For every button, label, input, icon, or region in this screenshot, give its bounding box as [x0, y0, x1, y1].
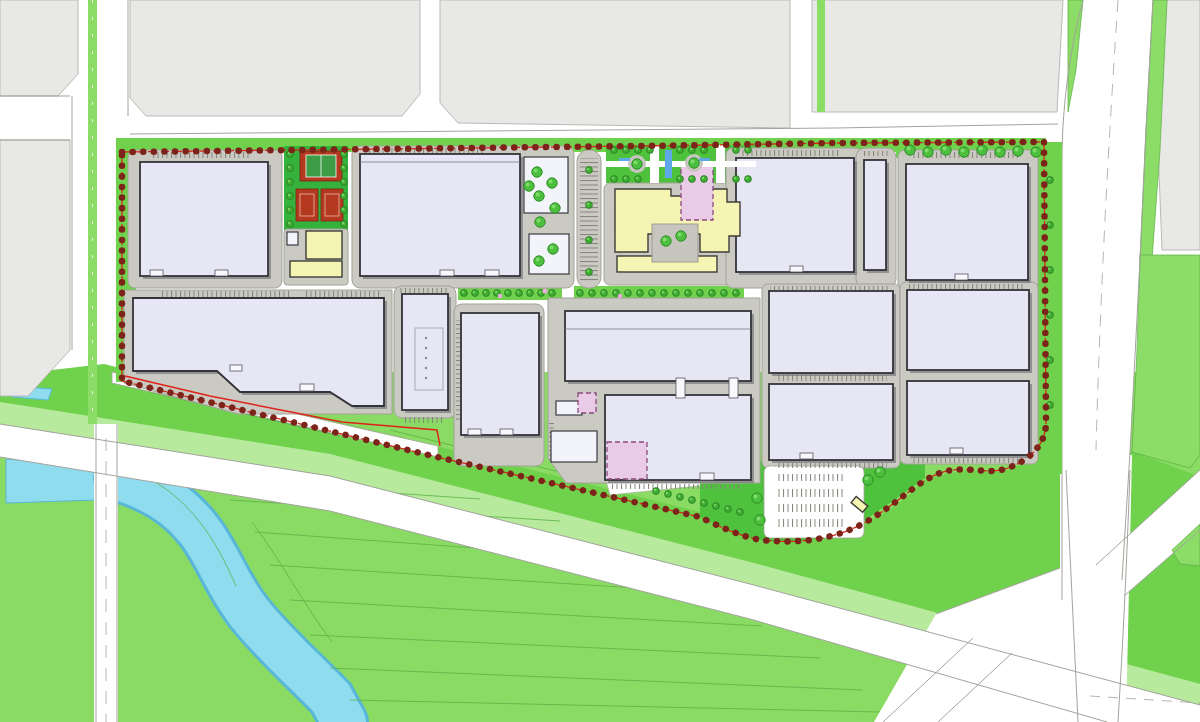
- east-boundary-strip: [1036, 142, 1062, 474]
- warehouse-a2: [360, 154, 520, 276]
- avenue-strip-west2: [817, 0, 825, 112]
- pink-small: [578, 393, 596, 413]
- expansion-c2: [607, 442, 647, 479]
- plaza-tree-circle: [632, 159, 642, 169]
- warehouse-a1: [140, 162, 268, 276]
- canteen-1: [306, 231, 342, 259]
- plaza-tree-circle: [689, 158, 699, 168]
- city-block-n3: [812, 0, 1063, 112]
- warehouse-b6: [907, 290, 1029, 370]
- production-hall-c1: [565, 311, 751, 381]
- narrow-building: [864, 160, 886, 270]
- warehouse-a3: [736, 158, 854, 272]
- warehouse-b3: [461, 313, 539, 435]
- office-wing-lower: [529, 234, 569, 274]
- city-block-nw: [0, 0, 78, 96]
- utility-building-b2: [402, 294, 448, 410]
- water-dash-2: [699, 158, 710, 161]
- warehouse-b5: [769, 384, 893, 460]
- city-block-n2: [440, 0, 790, 128]
- city-block-west: [0, 140, 70, 396]
- east-green-mid: [1132, 255, 1200, 468]
- office-courtyard: [652, 224, 698, 262]
- master-plan-drawing: [0, 0, 1200, 722]
- city-block-n1: [130, 0, 420, 116]
- aux-d2: [551, 431, 597, 462]
- canteen-2: [290, 261, 342, 277]
- warehouse-b4: [769, 291, 893, 373]
- aux-small-1: [287, 232, 298, 245]
- warehouse-b7: [907, 381, 1029, 455]
- water-dash-1: [619, 158, 630, 161]
- warehouse-a4: [906, 164, 1028, 280]
- avenue-median-west: [88, 0, 97, 424]
- site-plan-canvas: [0, 0, 1200, 722]
- water-channel: [665, 150, 672, 178]
